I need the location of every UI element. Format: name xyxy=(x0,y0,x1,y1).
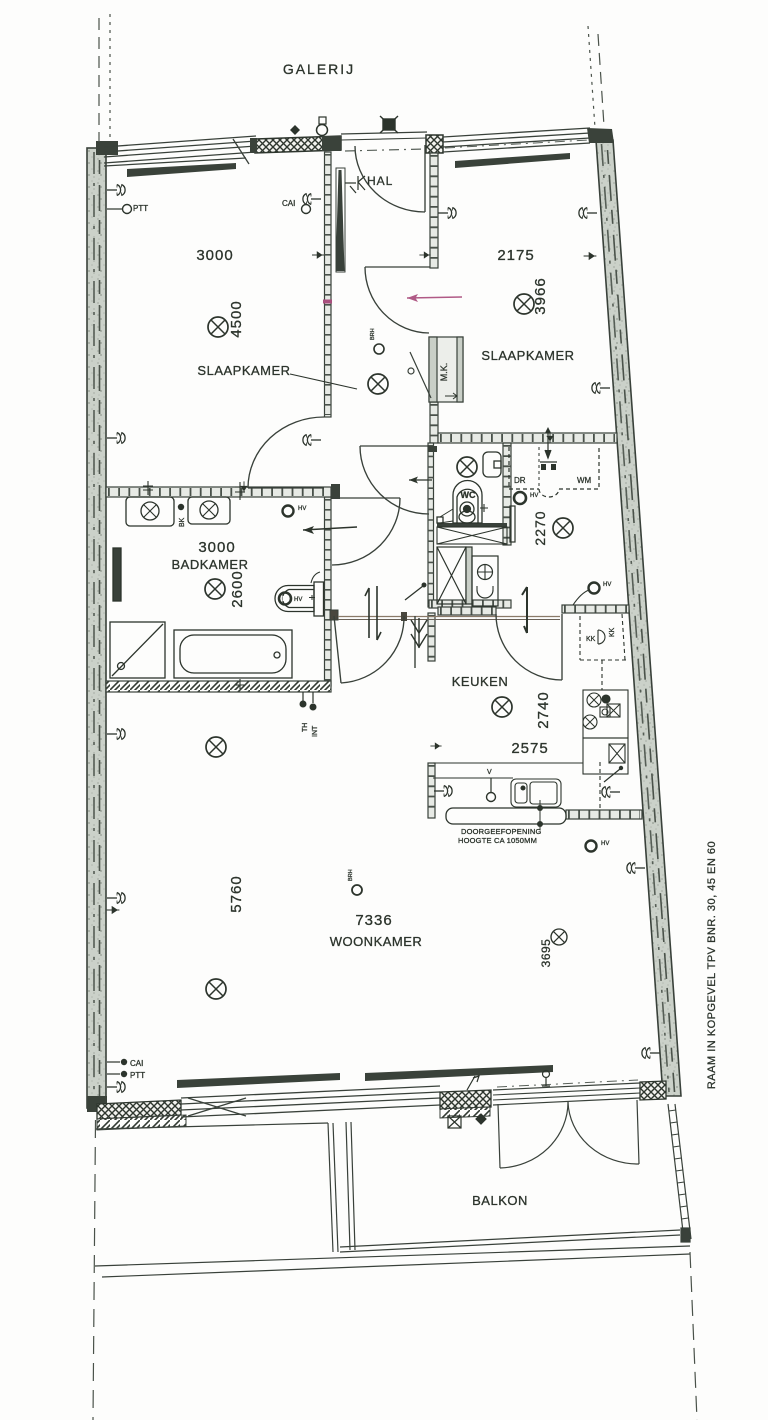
svg-text:M.K.: M.K. xyxy=(439,363,449,382)
svg-text:5760: 5760 xyxy=(228,875,245,912)
svg-text:PTT: PTT xyxy=(133,204,148,213)
svg-text:HV: HV xyxy=(298,506,306,512)
svg-text:KK: KK xyxy=(609,627,616,637)
svg-text:INT: INT xyxy=(312,725,319,737)
svg-text:WM: WM xyxy=(577,476,592,485)
svg-text:HOOGTE CA 1050MM: HOOGTE CA 1050MM xyxy=(458,836,537,845)
svg-text:WOONKAMER: WOONKAMER xyxy=(330,934,423,949)
svg-text:HAL: HAL xyxy=(367,174,393,188)
svg-text:GALERIJ: GALERIJ xyxy=(283,61,355,77)
svg-text:HV: HV xyxy=(601,841,609,847)
svg-text:BK: BK xyxy=(179,517,186,527)
svg-text:CAI: CAI xyxy=(282,199,295,208)
svg-text:CAI: CAI xyxy=(130,1059,143,1068)
svg-text:BALKON: BALKON xyxy=(472,1193,528,1208)
svg-text:DR: DR xyxy=(514,476,526,485)
svg-text:2175: 2175 xyxy=(497,247,534,264)
svg-text:WC: WC xyxy=(461,490,476,500)
svg-text:2575: 2575 xyxy=(511,740,548,757)
svg-text:SLAAPKAMER: SLAAPKAMER xyxy=(197,363,290,378)
svg-text:4500: 4500 xyxy=(228,300,245,337)
svg-text:V: V xyxy=(487,769,492,776)
svg-text:BRH: BRH xyxy=(370,328,376,340)
svg-text:BRH: BRH xyxy=(348,869,354,881)
svg-text:BADKAMER: BADKAMER xyxy=(172,557,249,572)
svg-text:2600: 2600 xyxy=(229,570,246,607)
svg-text:KEUKEN: KEUKEN xyxy=(452,674,508,689)
svg-text:HV: HV xyxy=(294,597,302,603)
svg-text:HV: HV xyxy=(603,582,611,588)
svg-text:DOORGEEFOPENING: DOORGEEFOPENING xyxy=(461,827,542,836)
svg-text:PTT: PTT xyxy=(130,1071,145,1080)
svg-text:RAAM IN KOPGEVEL TPV BNR. 30,: RAAM IN KOPGEVEL TPV BNR. 30, 45 EN 60 xyxy=(706,841,718,1089)
svg-text:2270: 2270 xyxy=(532,510,548,545)
svg-text:SLAAPKAMER: SLAAPKAMER xyxy=(481,348,574,363)
svg-text:TH: TH xyxy=(302,723,309,732)
svg-text:3000: 3000 xyxy=(196,247,233,264)
svg-text:KK: KK xyxy=(586,636,596,643)
svg-text:2740: 2740 xyxy=(535,691,552,728)
svg-text:3000: 3000 xyxy=(198,539,235,556)
svg-text:3695: 3695 xyxy=(539,939,553,968)
svg-text:3966: 3966 xyxy=(532,277,549,314)
svg-text:HV: HV xyxy=(530,493,538,499)
svg-text:7336: 7336 xyxy=(355,912,392,929)
